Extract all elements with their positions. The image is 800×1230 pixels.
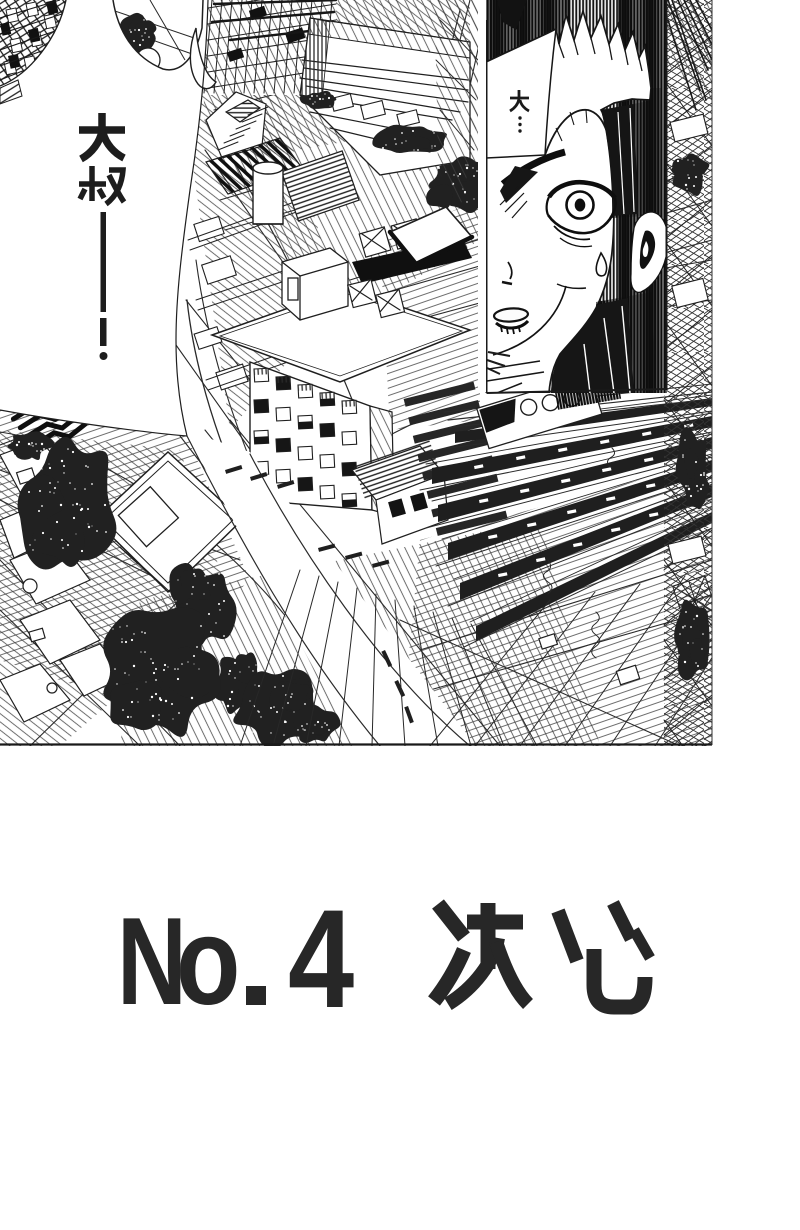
svg-text:4: 4: [288, 880, 354, 1037]
svg-text:o: o: [176, 893, 240, 1031]
